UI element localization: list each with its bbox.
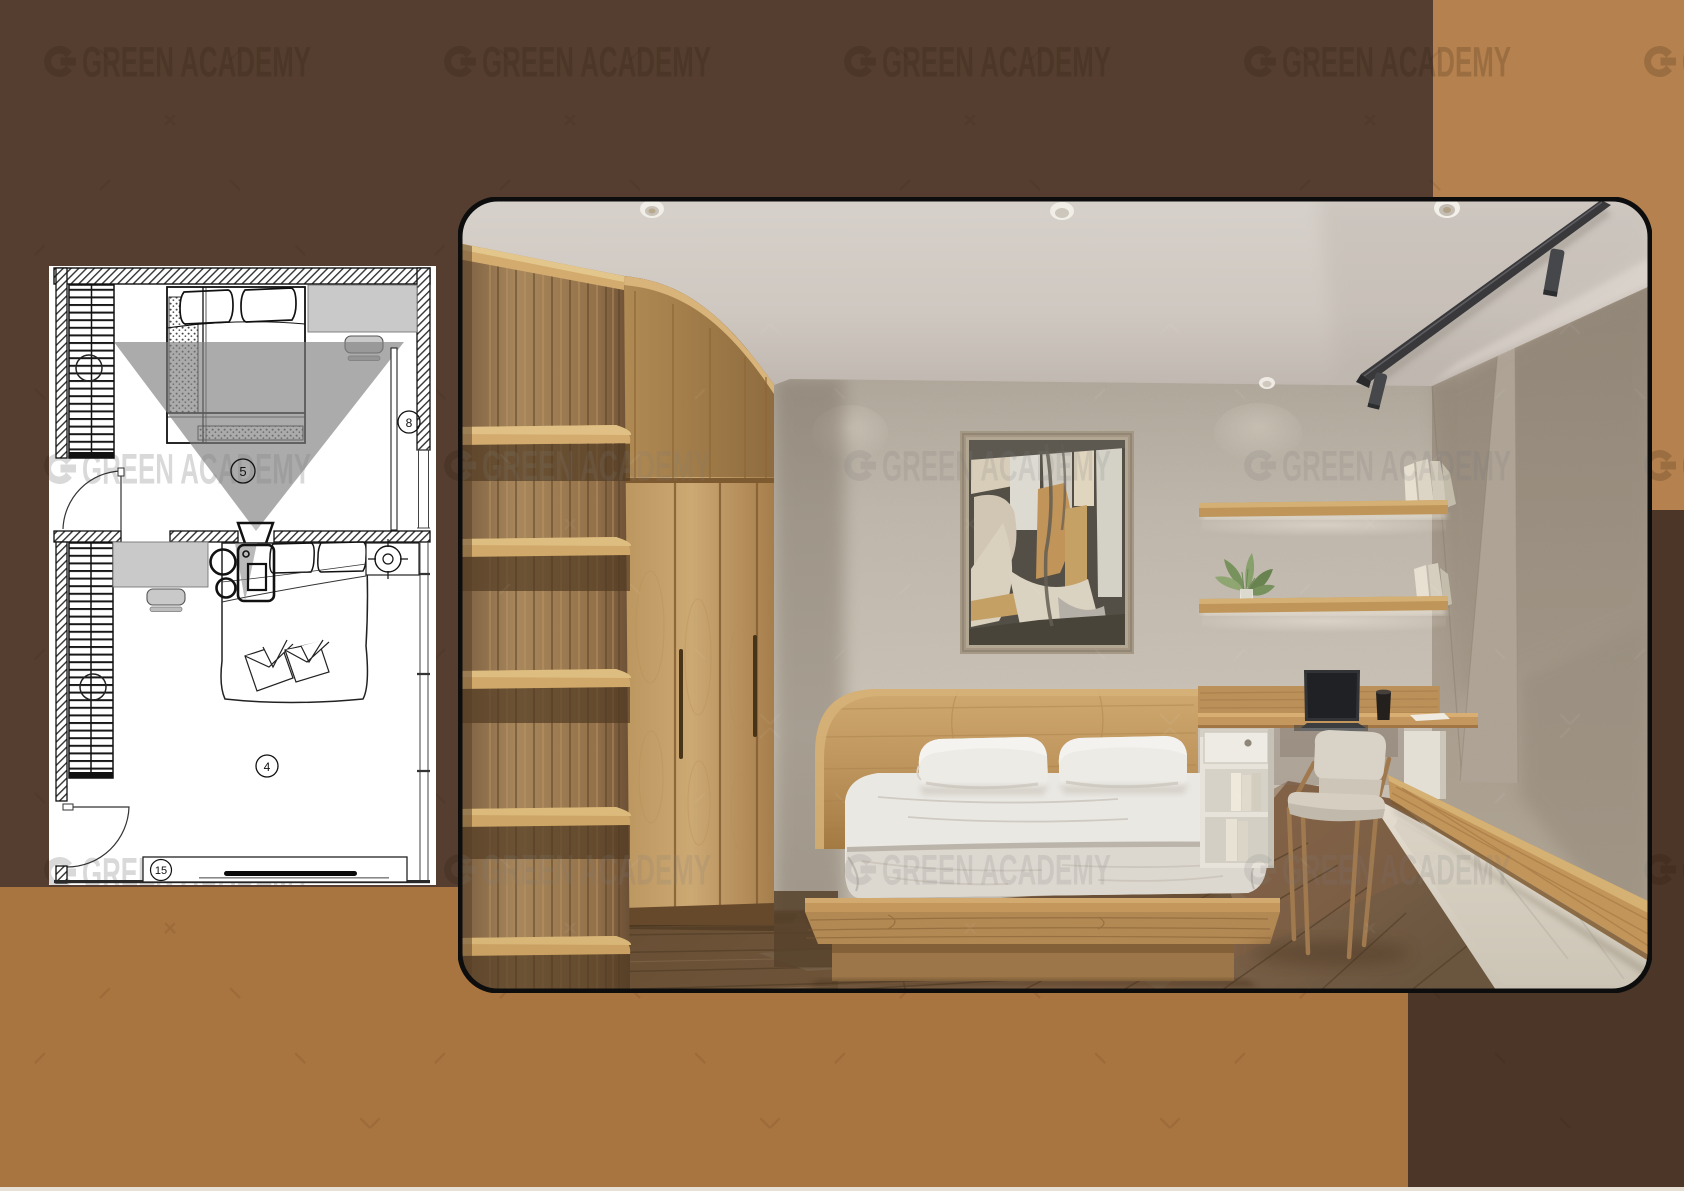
- svg-text:15: 15: [155, 865, 167, 877]
- svg-text:4: 4: [264, 760, 271, 774]
- svg-text:8: 8: [406, 416, 413, 430]
- svg-text:5: 5: [239, 464, 246, 479]
